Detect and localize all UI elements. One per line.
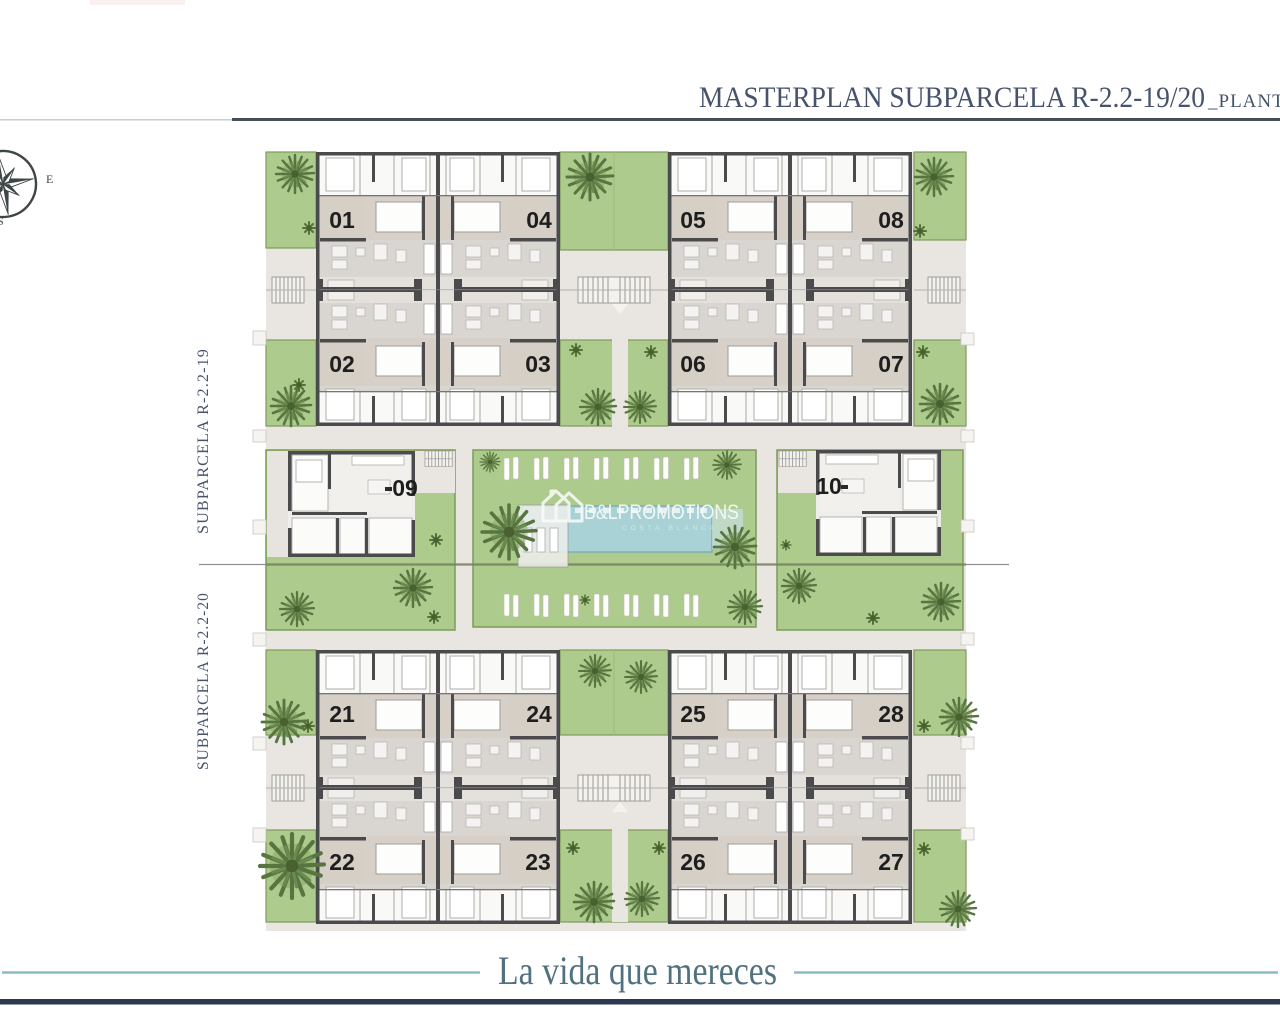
svg-text:05: 05 — [680, 207, 706, 233]
svg-text:22: 22 — [329, 849, 355, 875]
svg-text:02: 02 — [329, 351, 355, 377]
svg-text:MASTERPLAN SUBPARCELA R-2.2-19: MASTERPLAN SUBPARCELA R-2.2-19/20 — [699, 81, 1205, 114]
svg-text:28: 28 — [878, 701, 904, 727]
svg-text:01: 01 — [329, 207, 355, 233]
svg-text:E: E — [46, 172, 53, 186]
svg-text:B&LPROMOTIONS: B&LPROMOTIONS — [584, 501, 739, 524]
svg-text:SUBPARCELA R-2.2-19: SUBPARCELA R-2.2-19 — [195, 348, 212, 534]
svg-text:_PLANTA B: _PLANTA B — [1207, 91, 1280, 112]
svg-text:SUBPARCELA R-2.2-20: SUBPARCELA R-2.2-20 — [195, 592, 212, 770]
svg-text:23: 23 — [525, 849, 551, 875]
svg-text:10: 10 — [816, 473, 842, 499]
svg-text:24: 24 — [526, 701, 552, 727]
svg-text:26: 26 — [680, 849, 706, 875]
svg-text:08: 08 — [878, 207, 904, 233]
svg-text:S: S — [0, 214, 4, 228]
svg-text:21: 21 — [329, 701, 355, 727]
svg-text:La vida que mereces: La vida que mereces — [498, 948, 777, 993]
svg-text:25: 25 — [680, 701, 706, 727]
svg-text:04: 04 — [526, 207, 552, 233]
svg-text:07: 07 — [878, 351, 904, 377]
svg-text:09: 09 — [392, 475, 418, 501]
svg-text:03: 03 — [525, 351, 551, 377]
svg-text:06: 06 — [680, 351, 706, 377]
svg-text:27: 27 — [878, 849, 904, 875]
